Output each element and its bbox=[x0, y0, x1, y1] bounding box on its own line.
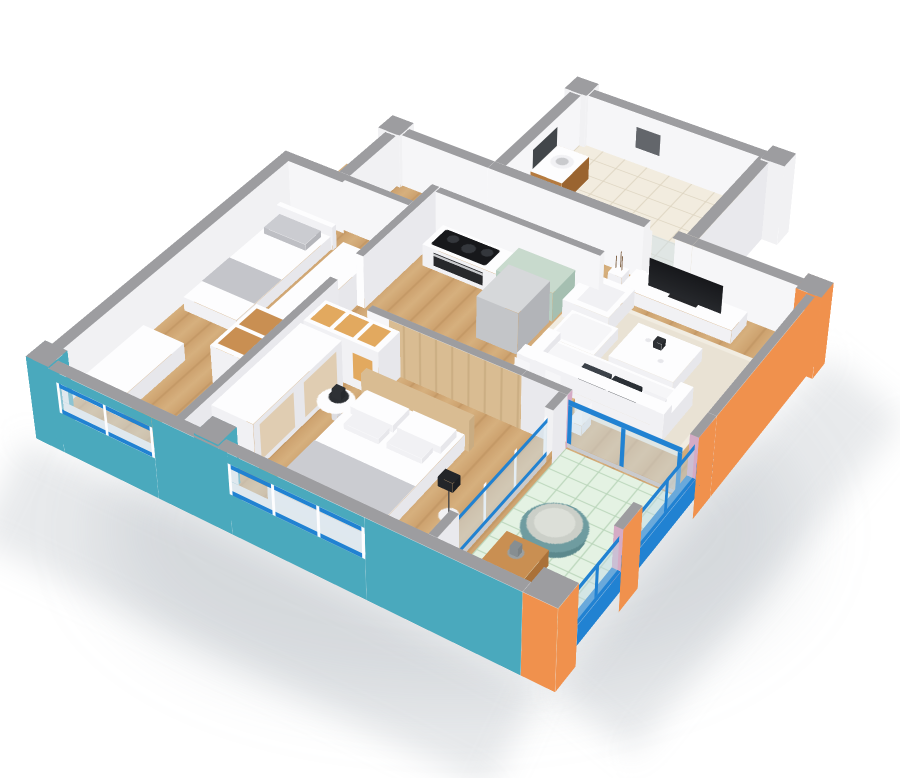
master-headboard-face-e bbox=[469, 415, 475, 452]
apartment-floorplan-render bbox=[0, 0, 900, 778]
se-corner-face-s bbox=[521, 592, 558, 692]
isometric-viewport bbox=[0, 0, 900, 778]
